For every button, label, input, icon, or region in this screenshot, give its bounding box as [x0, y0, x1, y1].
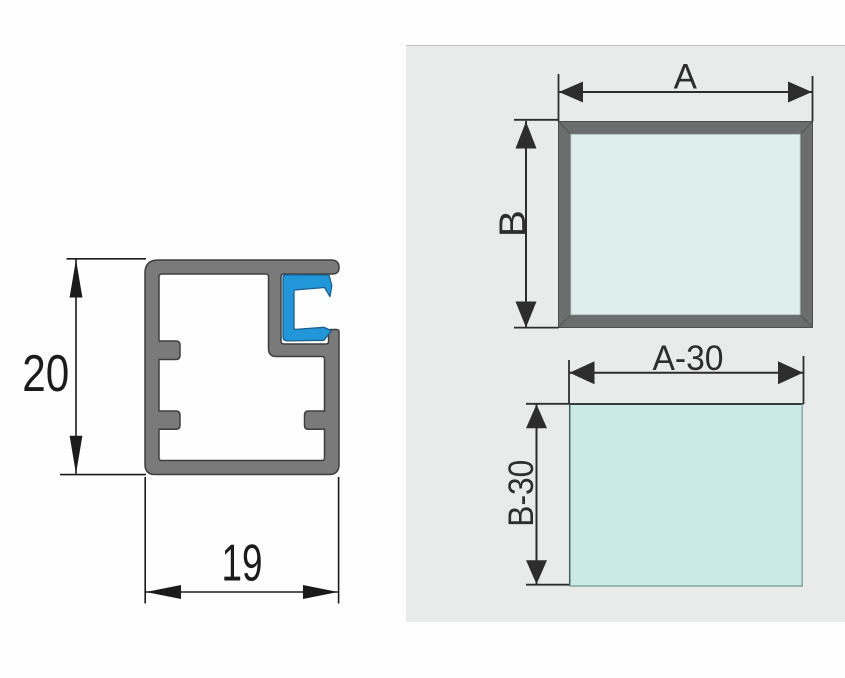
svg-text:B-30: B-30: [502, 460, 541, 527]
svg-text:20: 20: [22, 345, 69, 403]
svg-text:A: A: [674, 57, 698, 96]
svg-text:19: 19: [222, 535, 263, 593]
svg-text:A-30: A-30: [653, 339, 724, 378]
svg-text:B: B: [493, 210, 534, 237]
